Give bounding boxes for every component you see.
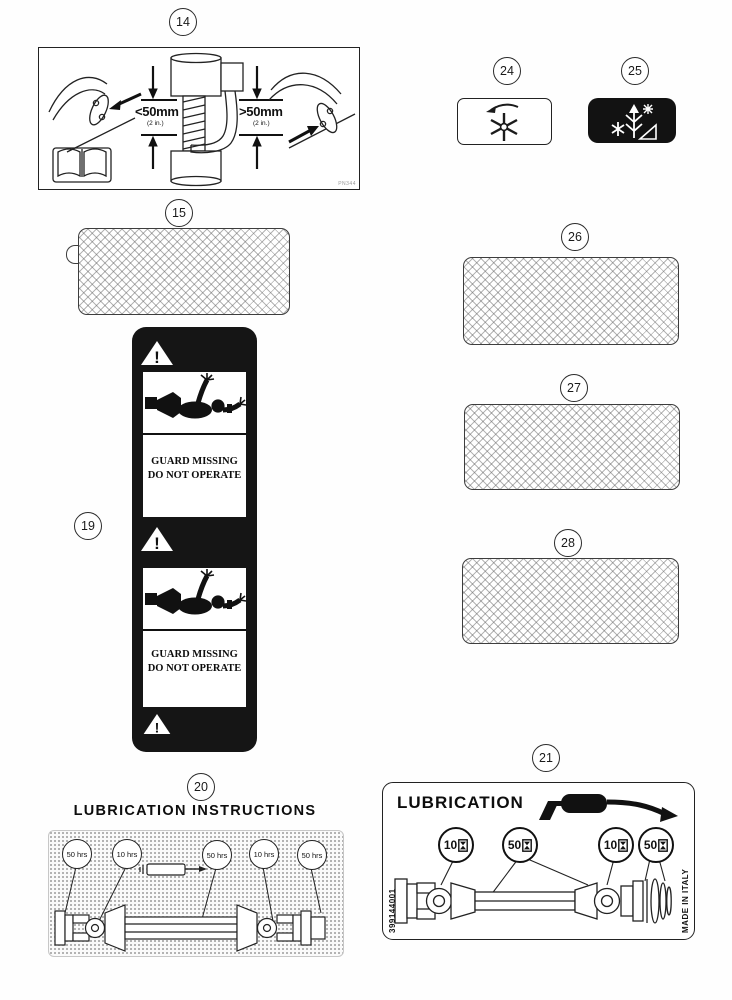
- callout-26-number: 26: [568, 230, 582, 244]
- callout-14-number: 14: [176, 15, 190, 29]
- decal-part-code: PN344: [338, 181, 356, 187]
- grease-gun-icon: [140, 864, 207, 875]
- callout-24: 24: [493, 57, 521, 85]
- callout-21-number: 21: [539, 751, 553, 765]
- callout-28: 28: [554, 529, 582, 557]
- callout-19-number: 19: [81, 519, 95, 533]
- callout-28-number: 28: [561, 536, 575, 550]
- thrown-objects-icon: [588, 98, 676, 143]
- warning-triangle-icon: !: [142, 711, 172, 737]
- interval-circle: 50: [502, 827, 538, 863]
- dim-left-label: <50mm: [135, 104, 179, 119]
- decal-20-lubrication-diagram: 50 hrs 10 hrs 50 hrs 10 hrs 50 hrs: [48, 830, 344, 957]
- interval-circle: 10: [598, 827, 634, 863]
- entanglement-pictogram: [143, 568, 246, 627]
- guard-missing-text: GUARD MISSING DO NOT OPERATE: [143, 648, 246, 675]
- hourglass-icon: [658, 839, 668, 852]
- warning-panel-top: GUARD MISSING DO NOT OPERATE: [143, 372, 246, 517]
- decal-24-rotation: [457, 98, 552, 145]
- interval-circle: 10 hrs: [249, 839, 279, 869]
- dim-left-unit: (2 in.): [147, 120, 164, 127]
- callout-20: 20: [187, 773, 215, 801]
- hourglass-icon: [458, 839, 468, 852]
- guard-chain-left-icon: [49, 77, 141, 152]
- guard-missing-text: GUARD MISSING DO NOT OPERATE: [143, 455, 246, 482]
- callout-25-number: 25: [628, 64, 642, 78]
- callout-24-number: 24: [500, 64, 514, 78]
- decal-15-blank: [78, 228, 290, 315]
- warning-panel-bottom: GUARD MISSING DO NOT OPERATE: [143, 568, 246, 707]
- svg-text:!: !: [154, 348, 160, 367]
- callout-27: 27: [560, 374, 588, 402]
- decal-19-guard-missing: ! GUARD MISSING DO NOT OPERATE: [132, 327, 257, 752]
- decal-28-blank: [462, 558, 679, 644]
- part-number-vertical: 399144001: [388, 871, 397, 933]
- interval-circle: 50 hrs: [62, 839, 92, 869]
- panel-divider: [143, 629, 246, 631]
- callout-20-number: 20: [194, 780, 208, 794]
- decal-21-lubrication: LUBRICATION: [382, 782, 695, 940]
- panel-divider: [143, 433, 246, 435]
- warning-triangle-icon: !: [139, 526, 175, 552]
- interval-circle: 50 hrs: [297, 840, 327, 870]
- callout-27-number: 27: [567, 381, 581, 395]
- callout-15-number: 15: [172, 206, 186, 220]
- guard-clearance-diagram: [39, 48, 359, 189]
- book-icon: [53, 148, 111, 182]
- interval-circle: 50 hrs: [202, 840, 232, 870]
- svg-text:!: !: [154, 534, 160, 553]
- svg-text:!: !: [155, 720, 160, 736]
- dim-right-unit: (2 in.): [253, 120, 270, 127]
- callout-14: 14: [169, 8, 197, 36]
- warning-triangle-icon: !: [139, 340, 175, 366]
- decal-25-thrown-objects: [588, 98, 676, 143]
- dim-right-label: >50mm: [239, 104, 283, 119]
- callout-25: 25: [621, 57, 649, 85]
- callout-15: 15: [165, 199, 193, 227]
- decal-27-blank: [464, 404, 680, 490]
- callout-26: 26: [561, 223, 589, 251]
- interval-circle: 50: [638, 827, 674, 863]
- parts-catalog-decal-page: 14: [0, 0, 732, 1000]
- hourglass-icon: [522, 839, 532, 852]
- entanglement-pictogram: [143, 372, 246, 431]
- hourglass-icon: [618, 839, 628, 852]
- interval-circle: 10 hrs: [112, 839, 142, 869]
- decal-26-blank: [463, 257, 679, 345]
- rotating-spinner-icon: [458, 99, 551, 144]
- lubrication-instructions-title: LUBRICATION INSTRUCTIONS: [48, 803, 342, 819]
- made-in-italy-vertical: MADE IN ITALY: [681, 843, 690, 933]
- interval-circle: 10: [438, 827, 474, 863]
- callout-21: 21: [532, 744, 560, 772]
- callout-19: 19: [74, 512, 102, 540]
- decal-14-guard-clearance: <50mm (2 in.) >50mm (2 in.) PN344: [38, 47, 360, 190]
